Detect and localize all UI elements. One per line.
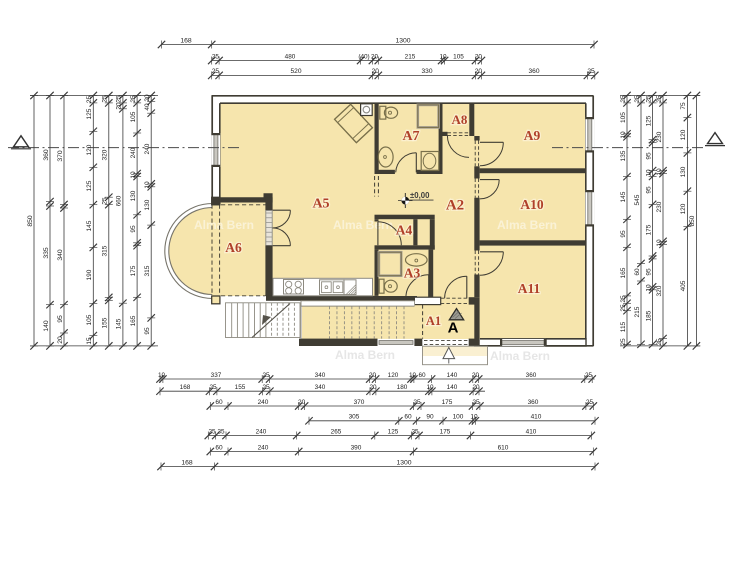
svg-text:850: 850	[27, 215, 34, 227]
svg-text:25: 25	[656, 338, 663, 346]
svg-text:40: 40	[144, 103, 151, 111]
svg-text:175: 175	[130, 265, 137, 276]
svg-text:95: 95	[144, 327, 151, 335]
svg-text:10: 10	[470, 414, 478, 421]
svg-text:Alma Bern: Alma Bern	[490, 349, 550, 363]
svg-text:A3: A3	[404, 266, 421, 281]
svg-text:25: 25	[212, 53, 220, 60]
svg-text:240: 240	[144, 143, 151, 154]
svg-text:145: 145	[116, 318, 123, 329]
svg-text:340: 340	[57, 249, 64, 261]
svg-text:410: 410	[526, 428, 537, 435]
svg-text:20: 20	[472, 372, 480, 379]
svg-text:10: 10	[620, 131, 627, 139]
svg-text:Alma Bern: Alma Bern	[335, 348, 395, 362]
svg-text:480: 480	[285, 53, 296, 60]
svg-text:Alma Bern: Alma Bern	[194, 218, 254, 232]
svg-text:660: 660	[116, 195, 123, 206]
svg-text:168: 168	[180, 384, 191, 391]
svg-text:360: 360	[528, 68, 539, 75]
svg-text:10: 10	[439, 53, 447, 60]
svg-text:±0,00: ±0,00	[410, 191, 430, 200]
svg-text:340: 340	[315, 372, 326, 379]
svg-text:360: 360	[526, 372, 537, 379]
svg-text:145: 145	[86, 220, 93, 231]
svg-text:360: 360	[528, 399, 539, 406]
svg-text:335: 335	[43, 247, 50, 259]
svg-text:370: 370	[354, 399, 365, 406]
svg-text:60: 60	[418, 372, 426, 379]
svg-text:168: 168	[181, 459, 193, 466]
svg-text:20: 20	[369, 372, 377, 379]
svg-text:95: 95	[645, 152, 652, 160]
svg-text:120: 120	[680, 129, 687, 140]
svg-text:A10: A10	[520, 197, 543, 212]
svg-text:20: 20	[298, 399, 306, 406]
svg-text:60: 60	[404, 414, 412, 421]
svg-text:405: 405	[680, 280, 687, 291]
svg-text:10: 10	[426, 384, 434, 391]
svg-text:25: 25	[116, 95, 123, 103]
svg-text:10: 10	[645, 169, 652, 177]
svg-text:315: 315	[102, 245, 109, 256]
svg-text:165: 165	[620, 267, 627, 278]
svg-text:Alma Bern: Alma Bern	[333, 218, 393, 232]
svg-text:25: 25	[86, 96, 93, 104]
svg-text:230: 230	[656, 201, 663, 212]
svg-text:370: 370	[57, 150, 64, 162]
svg-text:215: 215	[405, 53, 416, 60]
svg-text:230: 230	[656, 131, 663, 142]
svg-text:215: 215	[634, 306, 641, 317]
svg-text:120: 120	[680, 203, 687, 214]
svg-text:95: 95	[57, 315, 64, 323]
svg-text:155: 155	[102, 317, 109, 328]
svg-text:105: 105	[86, 314, 93, 325]
svg-text:60: 60	[634, 268, 641, 276]
svg-text:125: 125	[645, 115, 652, 126]
svg-text:25: 25	[411, 428, 419, 435]
svg-text:545: 545	[634, 194, 641, 205]
svg-text:25: 25	[413, 399, 421, 406]
svg-text:168: 168	[180, 37, 192, 44]
svg-text:10: 10	[130, 171, 137, 179]
svg-text:190: 190	[86, 269, 93, 280]
svg-text:125: 125	[86, 180, 93, 191]
svg-text:20: 20	[116, 102, 123, 110]
svg-text:130: 130	[130, 190, 137, 201]
svg-text:75: 75	[680, 102, 687, 110]
svg-text:(40): (40)	[358, 53, 369, 60]
svg-text:A9: A9	[524, 128, 541, 143]
svg-text:100: 100	[453, 414, 464, 421]
svg-text:A6: A6	[225, 240, 242, 255]
svg-text:175: 175	[442, 399, 453, 406]
svg-text:20: 20	[144, 94, 151, 102]
svg-text:95: 95	[130, 225, 137, 233]
svg-text:60: 60	[215, 399, 223, 406]
svg-text:20: 20	[475, 68, 483, 75]
svg-text:A5: A5	[312, 197, 329, 212]
svg-text:360: 360	[43, 149, 50, 161]
svg-text:10: 10	[645, 284, 652, 292]
svg-text:25: 25	[620, 304, 627, 312]
svg-text:25: 25	[620, 95, 627, 103]
svg-text:25: 25	[585, 372, 593, 379]
svg-text:240: 240	[258, 444, 269, 451]
svg-text:240: 240	[256, 428, 267, 435]
svg-text:25: 25	[130, 95, 137, 103]
svg-text:25: 25	[586, 399, 594, 406]
svg-text:25: 25	[587, 68, 595, 75]
svg-text:A1: A1	[426, 314, 441, 328]
svg-text:10: 10	[656, 239, 663, 247]
svg-text:A4: A4	[396, 223, 413, 238]
svg-text:95: 95	[645, 186, 652, 194]
svg-text:25: 25	[620, 295, 627, 303]
svg-text:320: 320	[102, 149, 109, 160]
svg-text:A11: A11	[518, 281, 541, 296]
svg-text:140: 140	[447, 384, 458, 391]
svg-text:20: 20	[472, 384, 480, 391]
svg-text:25: 25	[634, 95, 641, 103]
svg-text:175: 175	[440, 428, 451, 435]
svg-text:105: 105	[620, 112, 627, 123]
svg-text:185: 185	[645, 310, 652, 321]
svg-text:175: 175	[645, 224, 652, 235]
svg-text:60: 60	[215, 444, 223, 451]
svg-text:95: 95	[645, 268, 652, 276]
svg-text:520: 520	[290, 68, 301, 75]
svg-text:850: 850	[689, 215, 696, 226]
svg-text:10: 10	[158, 372, 166, 379]
svg-text:315: 315	[144, 265, 151, 276]
svg-text:135: 135	[620, 150, 627, 161]
svg-text:20: 20	[372, 68, 380, 75]
svg-text:337: 337	[211, 372, 222, 379]
svg-text:165: 165	[130, 315, 137, 326]
svg-text:95: 95	[620, 230, 627, 238]
svg-text:265: 265	[331, 428, 342, 435]
svg-text:25: 25	[209, 384, 217, 391]
svg-text:35: 35	[217, 428, 225, 435]
svg-text:105: 105	[130, 111, 137, 122]
svg-text:125: 125	[388, 428, 399, 435]
svg-text:A8: A8	[452, 112, 468, 127]
svg-text:25: 25	[102, 95, 109, 103]
svg-text:120: 120	[86, 144, 93, 155]
svg-text:25: 25	[472, 399, 480, 406]
svg-text:A7: A7	[402, 129, 419, 144]
svg-text:390: 390	[351, 444, 362, 451]
svg-text:1300: 1300	[396, 459, 411, 466]
svg-text:125: 125	[86, 108, 93, 119]
svg-text:330: 330	[421, 68, 432, 75]
svg-text:410: 410	[531, 414, 542, 421]
svg-text:130: 130	[680, 166, 687, 177]
svg-text:20: 20	[57, 336, 64, 344]
svg-text:25: 25	[208, 428, 216, 435]
svg-text:25: 25	[656, 95, 663, 103]
svg-text:180: 180	[397, 384, 408, 391]
svg-text:340: 340	[315, 384, 326, 391]
svg-text:A2: A2	[446, 198, 464, 214]
svg-text:120: 120	[388, 372, 399, 379]
svg-text:320: 320	[656, 285, 663, 296]
svg-text:25: 25	[620, 338, 627, 346]
svg-text:25: 25	[102, 197, 109, 205]
svg-text:130: 130	[144, 199, 151, 210]
svg-text:25: 25	[212, 68, 220, 75]
svg-text:10: 10	[144, 181, 151, 189]
svg-text:15: 15	[86, 337, 93, 345]
svg-text:20: 20	[475, 53, 483, 60]
svg-text:240: 240	[130, 147, 137, 158]
svg-text:20: 20	[371, 53, 379, 60]
svg-text:A: A	[448, 320, 459, 337]
svg-text:610: 610	[498, 444, 509, 451]
svg-text:140: 140	[43, 320, 50, 332]
svg-text:25: 25	[262, 372, 270, 379]
svg-text:20: 20	[369, 384, 377, 391]
svg-text:105: 105	[453, 53, 464, 60]
svg-text:25: 25	[262, 384, 270, 391]
svg-text:140: 140	[447, 372, 458, 379]
svg-text:25: 25	[645, 95, 652, 103]
svg-text:90: 90	[426, 414, 434, 421]
svg-text:115: 115	[620, 321, 627, 332]
svg-text:Alma Bern: Alma Bern	[497, 218, 557, 232]
svg-text:10: 10	[656, 168, 663, 176]
svg-text:145: 145	[620, 191, 627, 202]
svg-text:240: 240	[258, 399, 269, 406]
svg-text:155: 155	[235, 384, 246, 391]
svg-text:10: 10	[409, 372, 417, 379]
svg-text:1300: 1300	[395, 37, 410, 44]
svg-text:305: 305	[349, 414, 360, 421]
